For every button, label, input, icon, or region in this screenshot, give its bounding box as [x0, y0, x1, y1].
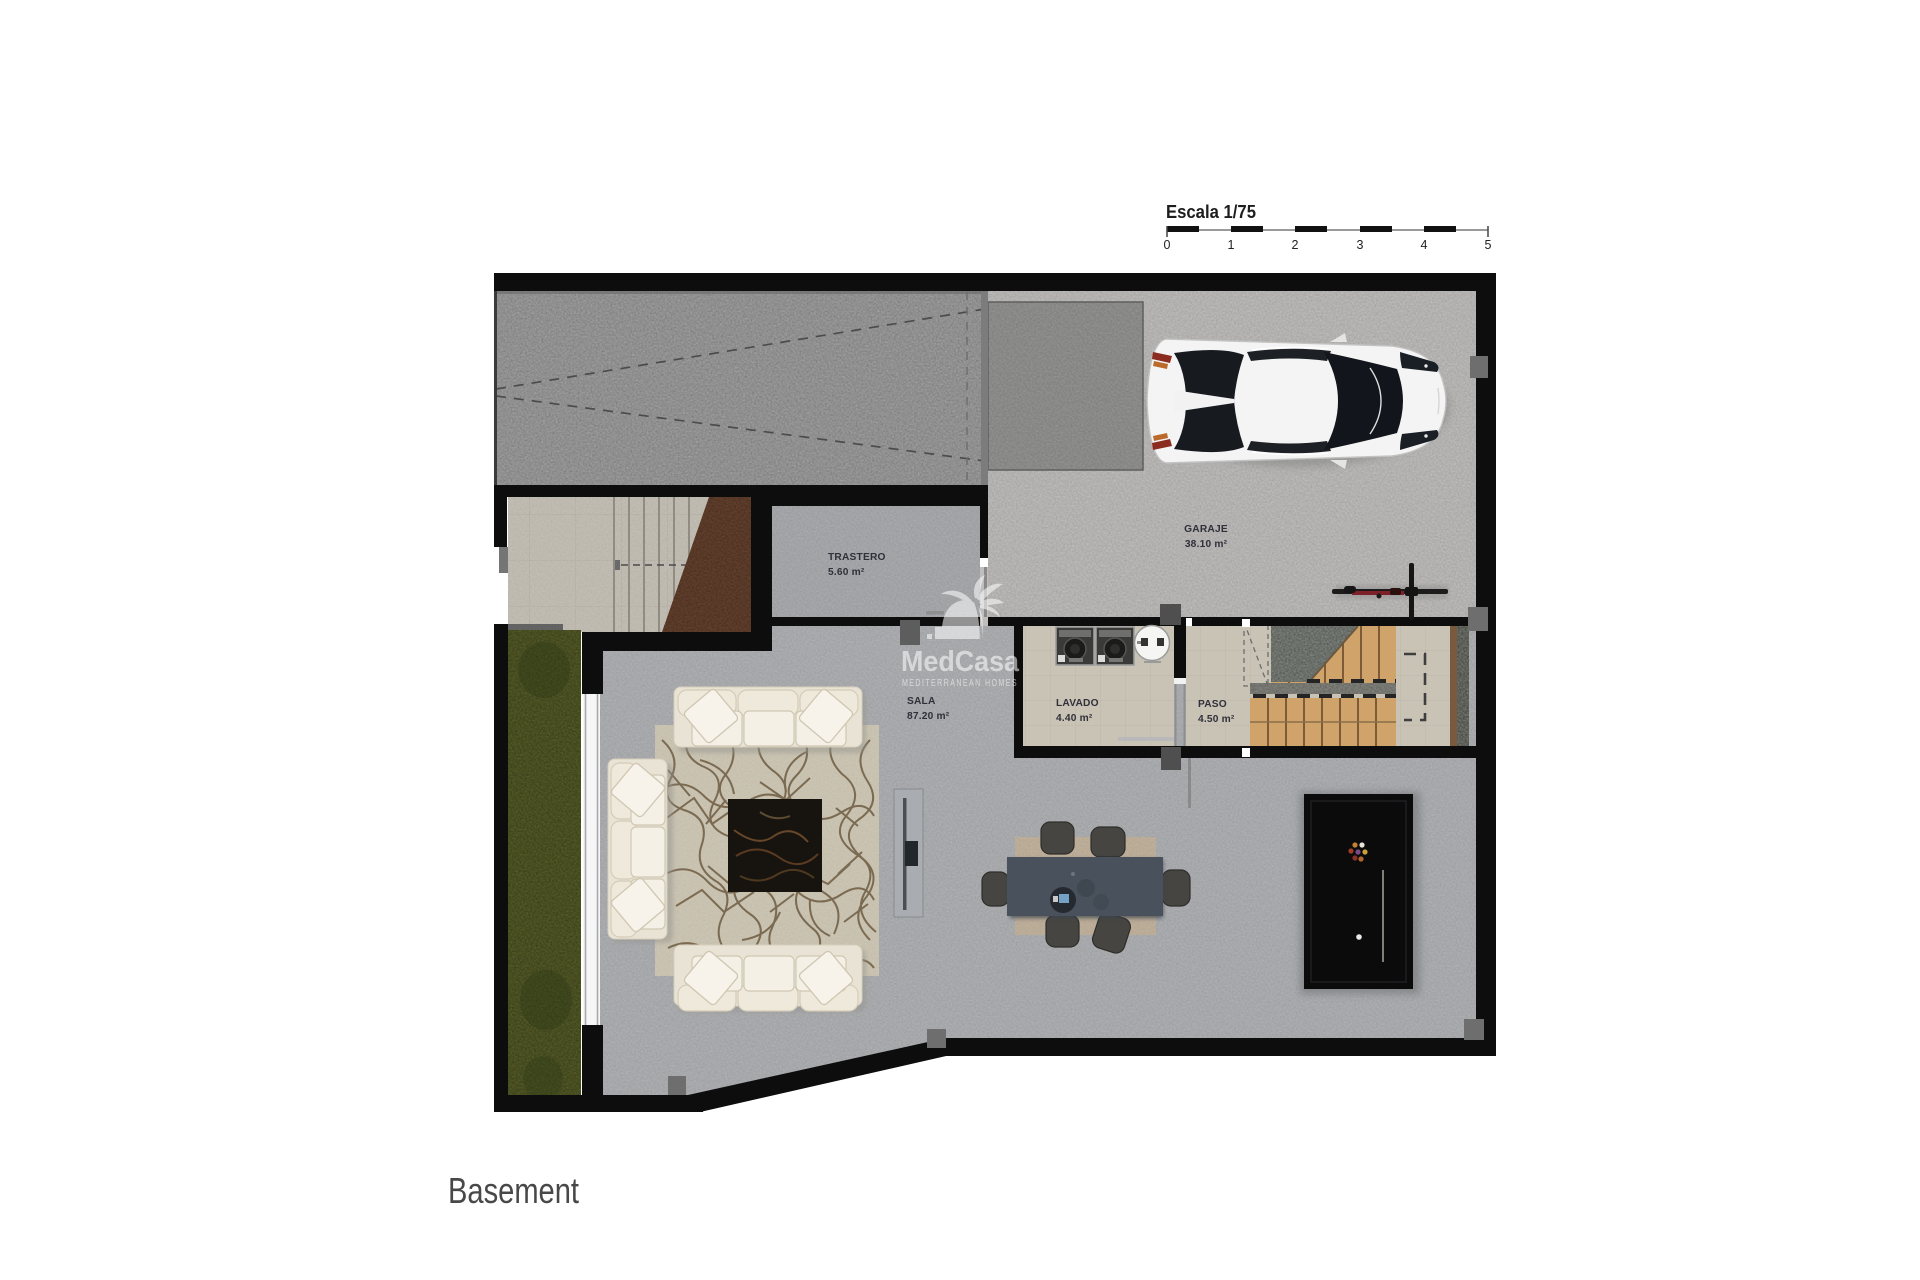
svg-text:TRASTERO: TRASTERO: [828, 552, 886, 563]
svg-text:5: 5: [1485, 238, 1492, 252]
svg-text:2: 2: [1292, 238, 1299, 252]
svg-text:87.20 m²: 87.20 m²: [907, 711, 950, 722]
svg-text:38.10 m²: 38.10 m²: [1185, 539, 1228, 550]
svg-text:SALA: SALA: [907, 696, 936, 707]
svg-text:4.50 m²: 4.50 m²: [1198, 714, 1235, 725]
svg-text:MedCasa: MedCasa: [901, 646, 1020, 678]
svg-text:LAVADO: LAVADO: [1056, 698, 1099, 709]
svg-text:MEDITERRANEAN HOMES: MEDITERRANEAN HOMES: [902, 678, 1018, 689]
svg-text:0: 0: [1164, 238, 1171, 252]
svg-text:4.40 m²: 4.40 m²: [1056, 713, 1093, 724]
svg-text:Basement: Basement: [448, 1170, 579, 1211]
svg-text:5.60 m²: 5.60 m²: [828, 567, 865, 578]
svg-text:PASO: PASO: [1198, 699, 1227, 710]
svg-text:GARAJE: GARAJE: [1184, 524, 1228, 535]
svg-text:3: 3: [1357, 238, 1364, 252]
svg-text:1: 1: [1228, 238, 1235, 252]
svg-text:Escala 1/75: Escala 1/75: [1166, 202, 1256, 222]
svg-text:4: 4: [1421, 238, 1428, 252]
